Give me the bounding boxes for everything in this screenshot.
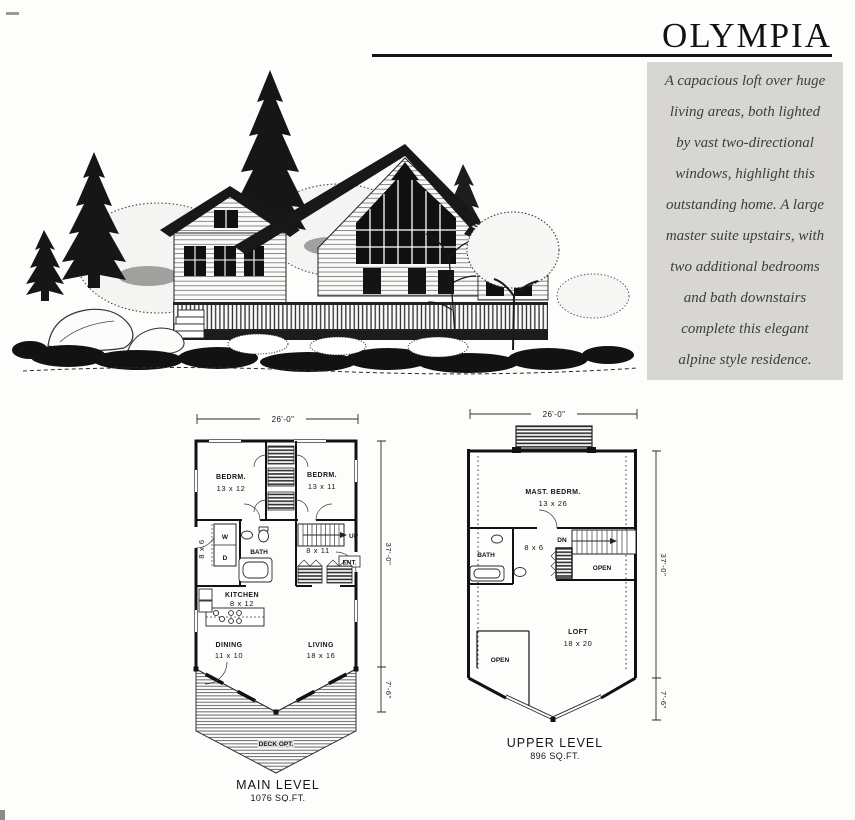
- bathroom: BATH: [239, 527, 272, 582]
- scan-mark: [0, 810, 5, 820]
- description-line: and bath downstairs: [684, 283, 807, 314]
- laundry-size: 8 x 6: [197, 539, 206, 558]
- dim-label: 7'-6": [384, 681, 393, 699]
- leafy-tree: [467, 212, 559, 288]
- stairs-label: UP: [349, 533, 359, 540]
- open-label: OPEN: [491, 657, 510, 664]
- kitchen-label: KITCHEN: [225, 592, 259, 599]
- bath-label: BATH: [250, 549, 268, 556]
- page-title: OLYMPIA: [662, 18, 832, 53]
- entry-label: ENT.: [342, 560, 356, 567]
- washer-label: W: [222, 534, 229, 541]
- dryer-label: D: [223, 555, 228, 562]
- dining-size: 11 x 10: [215, 651, 243, 660]
- level-label: MAIN LEVEL: [236, 778, 320, 792]
- rock: [48, 309, 133, 350]
- description-line: master suite upstairs, with: [666, 221, 824, 252]
- bath-label: BATH: [477, 552, 495, 559]
- scan-mark: [6, 12, 19, 15]
- fir-small: [26, 230, 64, 301]
- description-line: living areas, both lighted: [670, 97, 820, 128]
- master-label: MAST. BEDRM.: [525, 489, 580, 496]
- prow-walls: [469, 678, 636, 722]
- description-line: alpine style residence.: [678, 345, 811, 376]
- brochure-page: OLYMPIA A capacious loft over huge livin…: [0, 0, 855, 820]
- loft-label: LOFT: [568, 629, 588, 636]
- lower-doors: [363, 268, 454, 294]
- exterior-walls: [467, 449, 637, 678]
- house-illustration: [8, 58, 643, 393]
- door-arc: [539, 510, 557, 528]
- living-size: 18 x 16: [307, 651, 336, 660]
- level-area: 896 SQ.FT.: [530, 751, 580, 761]
- dimension-width: 26'-0": [197, 414, 358, 424]
- chimney: [556, 548, 572, 578]
- description-line: by vast two-directional: [676, 128, 814, 159]
- level-area: 1076 SQ.FT.: [251, 793, 306, 802]
- loft-size: 18 x 20: [564, 639, 593, 648]
- entry: ENT.: [339, 556, 360, 567]
- dim-label: 37'-0": [659, 554, 668, 577]
- dimension-height: 37'-0" 7'-6": [377, 441, 393, 712]
- stairs-label: DN: [557, 537, 567, 544]
- description-line: windows, highlight this: [675, 159, 815, 190]
- dining-label: DINING: [216, 642, 243, 649]
- dimension-width: 26'-0": [470, 409, 637, 419]
- description-line: two additional bedrooms: [670, 252, 819, 283]
- open-label: OPEN: [593, 565, 612, 572]
- dim-label: 7'-6": [659, 691, 668, 709]
- deck: [196, 669, 356, 773]
- bedroom1-size: 13 x 12: [217, 484, 246, 493]
- description-line: outstanding home. A large: [666, 190, 824, 221]
- hall-size: 8 x 11: [306, 546, 329, 555]
- dim-label: 26'-0": [272, 415, 295, 424]
- living-label: LIVING: [308, 642, 334, 649]
- title-rule: [372, 54, 832, 57]
- bedroom2-size: 13 x 11: [308, 482, 336, 491]
- upper-level-plan: 26'-0" MAST. BEDRM. 13 x 26: [450, 398, 680, 766]
- description-line: A capacious loft over huge: [665, 66, 826, 97]
- dimension-height: 37'-0" 7'-6": [652, 451, 668, 720]
- deck-railing: [173, 302, 548, 340]
- bedroom1-label: BEDRM.: [216, 474, 246, 481]
- level-label: UPPER LEVEL: [507, 736, 603, 750]
- description-box: A capacious loft over huge living areas,…: [647, 62, 843, 380]
- roof-below: [516, 426, 592, 449]
- kitchen-size: 8 x 12: [230, 599, 254, 608]
- hall-size: 8 x 6: [524, 543, 543, 552]
- deck-label: DECK OPT.: [259, 741, 294, 748]
- dim-label: 37'-0": [384, 543, 393, 566]
- laundry: W D 8 x 6: [197, 524, 236, 566]
- stairs-up: UP: [298, 524, 359, 546]
- description-line: complete this elegant: [681, 314, 808, 345]
- dim-label: 26'-0": [543, 410, 566, 419]
- light-bushes: [228, 334, 468, 357]
- main-level-plan: 26'-0" DECK OPT.: [175, 400, 405, 802]
- master-size: 13 x 26: [539, 499, 568, 508]
- closets: [254, 446, 308, 512]
- kitchen: KITCHEN 8 x 12: [199, 589, 264, 626]
- bedroom2-label: BEDRM.: [307, 472, 337, 479]
